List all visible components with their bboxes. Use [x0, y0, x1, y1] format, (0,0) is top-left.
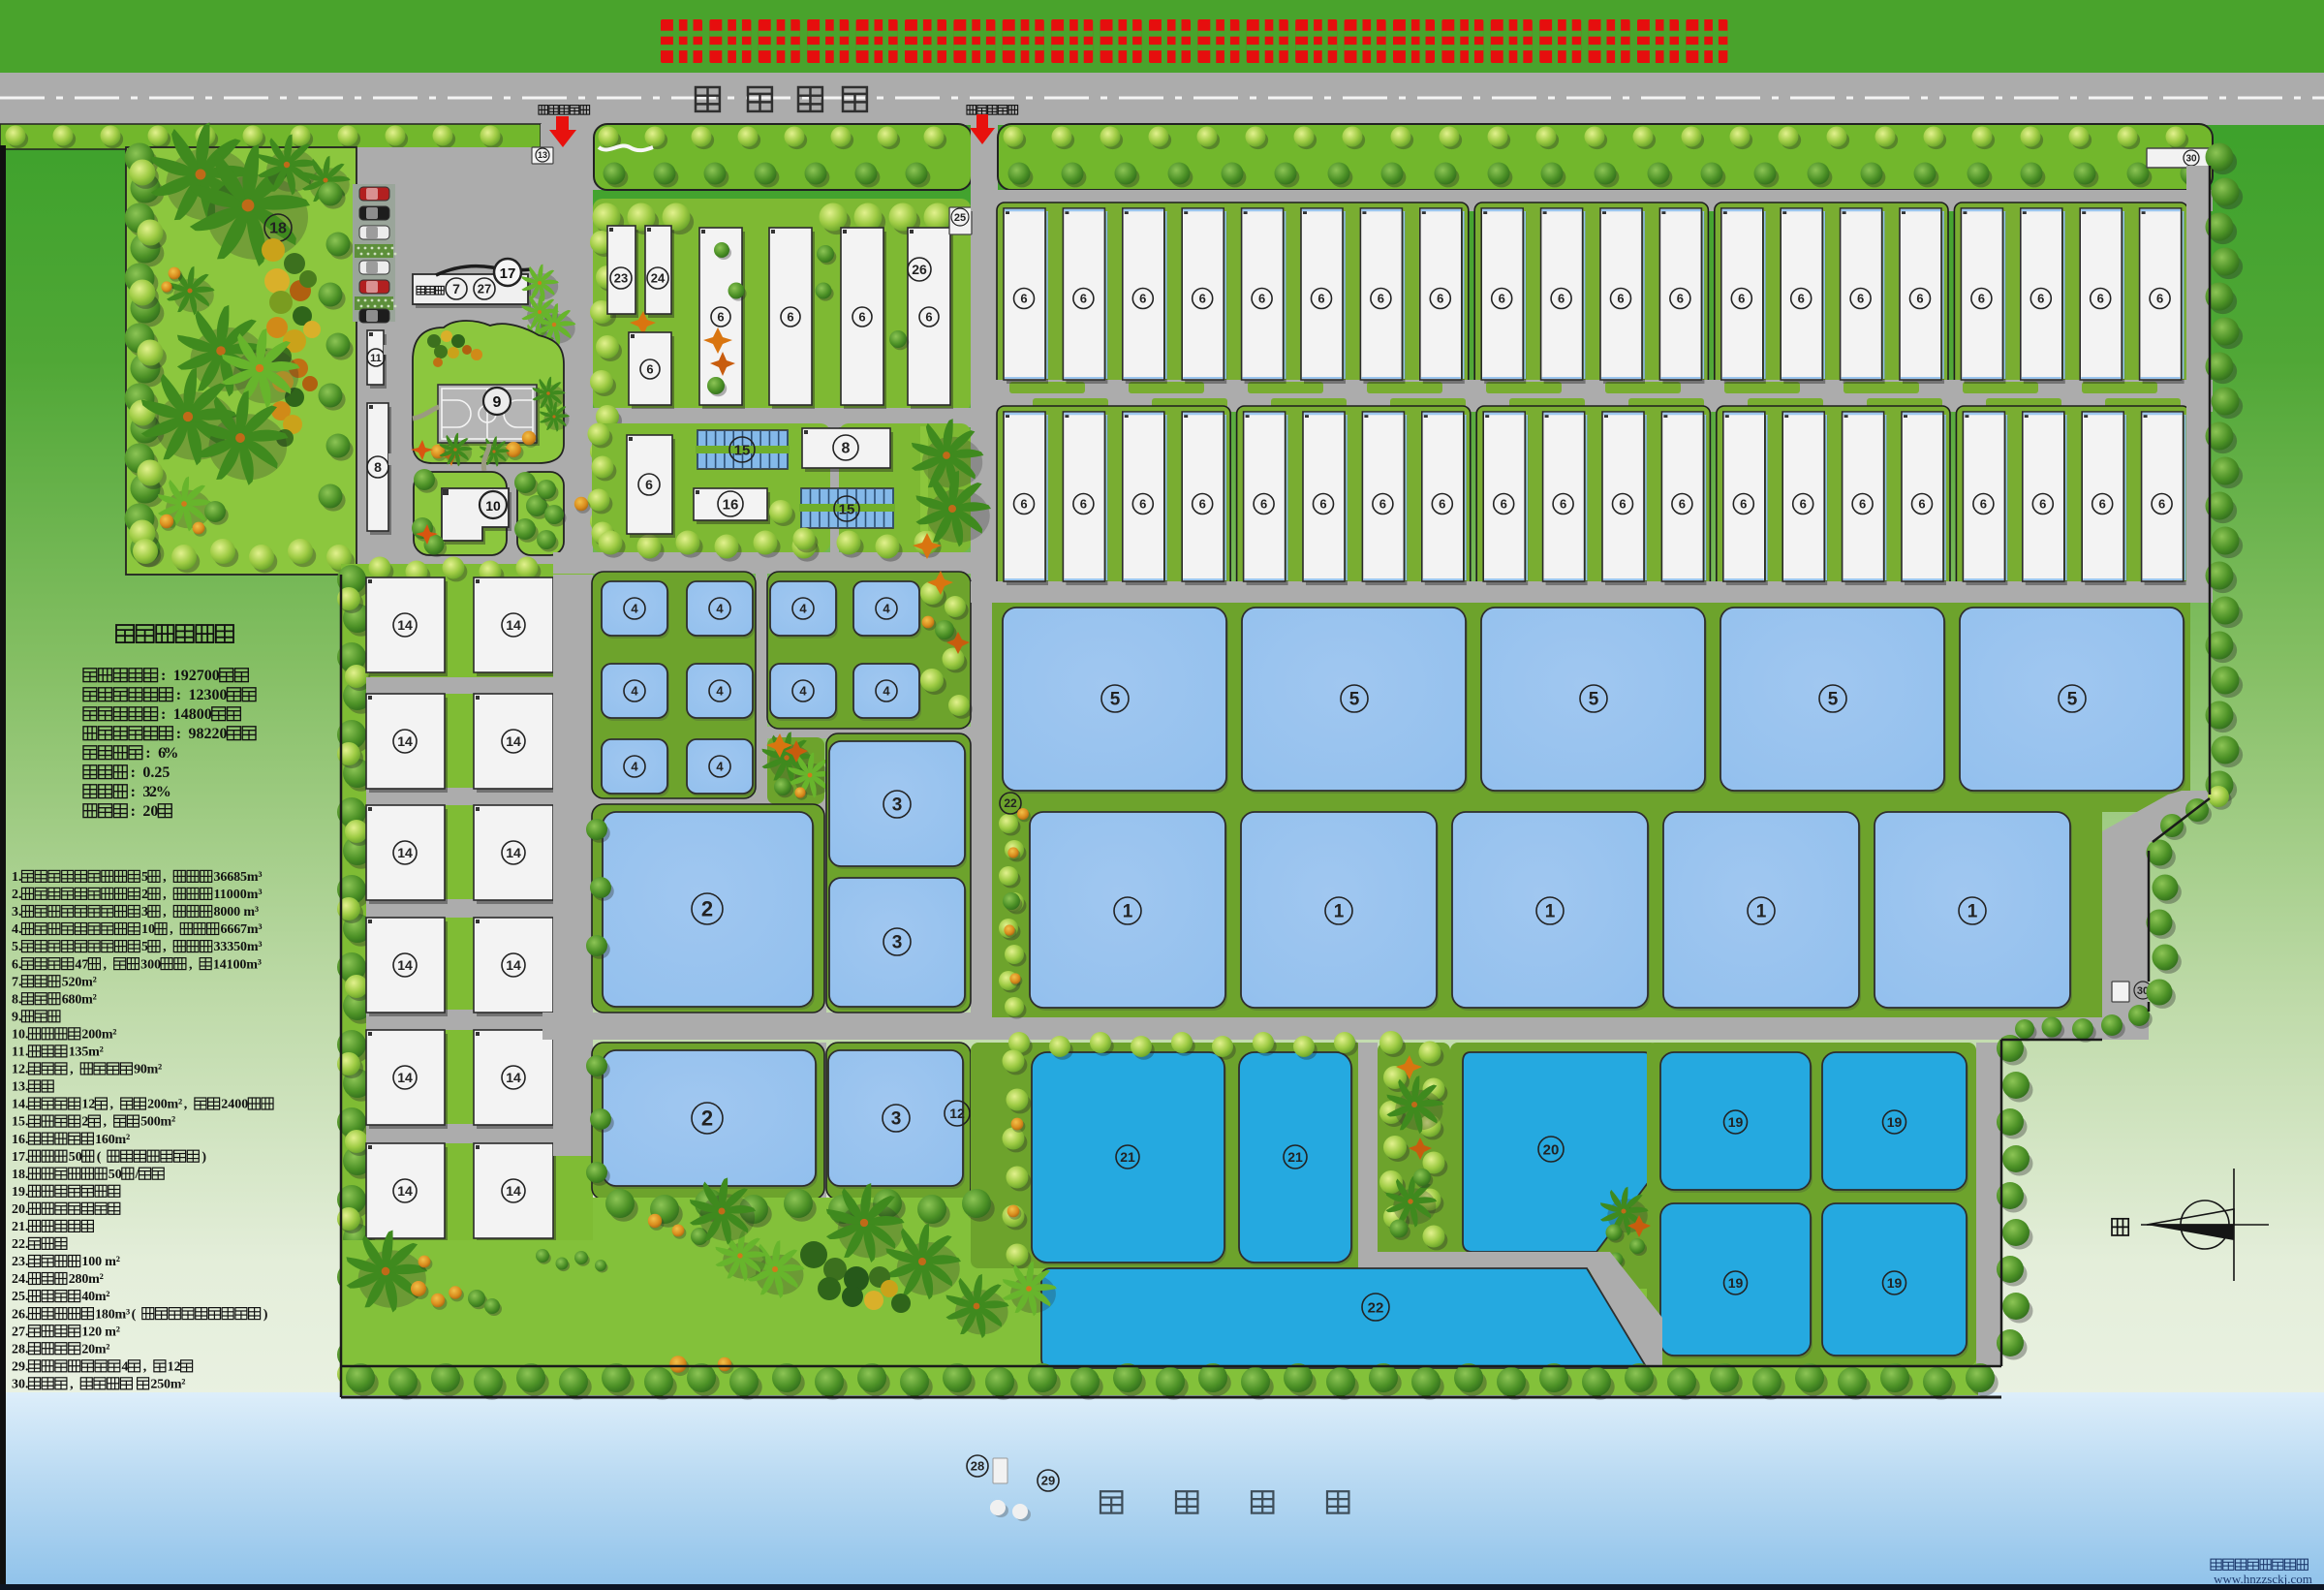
svg-text:180m³: 180m³ — [95, 1307, 130, 1322]
svg-text:3: 3 — [891, 1109, 902, 1130]
svg-text:5: 5 — [141, 940, 148, 954]
svg-text:6: 6 — [1080, 292, 1087, 306]
svg-text:,: , — [104, 957, 108, 972]
svg-text:6: 6 — [1260, 497, 1267, 512]
svg-text:5.: 5. — [12, 940, 22, 954]
svg-text:1: 1 — [1756, 902, 1767, 922]
svg-text:20: 20 — [1543, 1141, 1560, 1158]
svg-text::: : — [131, 803, 136, 820]
svg-text:6: 6 — [1980, 497, 1987, 512]
svg-text:6: 6 — [1437, 292, 1443, 306]
svg-text:135m²: 135m² — [69, 1045, 104, 1060]
svg-text:6: 6 — [717, 310, 724, 325]
svg-text:28.: 28. — [12, 1342, 29, 1356]
svg-text:14: 14 — [506, 733, 521, 749]
svg-text:3: 3 — [141, 905, 148, 920]
svg-text:3: 3 — [892, 933, 903, 953]
svg-text:36685m³: 36685m³ — [214, 870, 263, 885]
svg-text:1.: 1. — [12, 870, 22, 885]
svg-text:6: 6 — [1378, 292, 1384, 306]
svg-text:6: 6 — [1738, 292, 1745, 306]
svg-text:6: 6 — [1499, 292, 1505, 306]
svg-text:90m²: 90m² — [134, 1063, 162, 1077]
svg-text:14800: 14800 — [173, 706, 212, 723]
svg-text:4.: 4. — [12, 922, 22, 937]
svg-text:6: 6 — [858, 310, 865, 325]
svg-text:27.: 27. — [12, 1325, 29, 1339]
svg-text:,: , — [110, 1098, 114, 1112]
svg-text:22: 22 — [1004, 796, 1017, 810]
svg-text:26.: 26. — [12, 1307, 29, 1322]
svg-text:120 m²: 120 m² — [81, 1325, 120, 1339]
svg-text:6: 6 — [1558, 292, 1565, 306]
svg-text:2: 2 — [701, 1107, 713, 1131]
svg-text:14: 14 — [397, 617, 413, 633]
svg-text:,: , — [184, 1098, 188, 1112]
svg-text:4: 4 — [631, 760, 638, 774]
svg-text:(: ( — [132, 1307, 137, 1322]
svg-text::: : — [131, 784, 136, 800]
svg-text::: : — [176, 726, 181, 742]
svg-text:): ) — [201, 1150, 206, 1165]
svg-text:,: , — [163, 870, 167, 885]
svg-text:10.: 10. — [12, 1027, 29, 1042]
svg-text:12300: 12300 — [189, 687, 228, 703]
svg-text:6.: 6. — [12, 957, 22, 972]
svg-text:21.: 21. — [12, 1220, 29, 1234]
svg-text:6: 6 — [2156, 292, 2163, 306]
svg-text:4: 4 — [122, 1359, 129, 1374]
svg-text:6: 6 — [1139, 292, 1146, 306]
svg-text:16: 16 — [723, 496, 739, 513]
svg-text:19: 19 — [1887, 1275, 1903, 1291]
svg-text:6: 6 — [2099, 497, 2106, 512]
svg-text:6: 6 — [1080, 497, 1087, 512]
svg-text:6: 6 — [1501, 497, 1507, 512]
svg-text:6%: 6% — [158, 745, 178, 762]
svg-text:12: 12 — [949, 1106, 965, 1121]
svg-text:6: 6 — [1677, 292, 1684, 306]
svg-text:4: 4 — [799, 602, 807, 616]
svg-text:5: 5 — [1349, 690, 1360, 710]
svg-text:4: 4 — [883, 684, 890, 699]
svg-text:,: , — [143, 1359, 147, 1374]
svg-text:6: 6 — [1859, 497, 1866, 512]
svg-text:14: 14 — [397, 1183, 413, 1199]
svg-text:192700: 192700 — [173, 668, 220, 684]
svg-text:6: 6 — [1978, 292, 1985, 306]
svg-text:1: 1 — [1334, 902, 1345, 922]
svg-text:6: 6 — [2158, 497, 2165, 512]
svg-text:14: 14 — [506, 1070, 521, 1085]
svg-text:6: 6 — [1798, 292, 1805, 306]
svg-text:2: 2 — [141, 888, 148, 902]
svg-text:,: , — [163, 905, 167, 920]
svg-text:6: 6 — [2039, 497, 2046, 512]
svg-text::: : — [161, 706, 166, 723]
svg-text:33350m³: 33350m³ — [214, 940, 263, 954]
svg-text:19: 19 — [1728, 1114, 1744, 1130]
svg-text:,: , — [70, 1377, 74, 1391]
svg-text:6: 6 — [1258, 292, 1265, 306]
svg-text:9.: 9. — [12, 1010, 22, 1024]
svg-text:4: 4 — [716, 760, 724, 774]
svg-text:200m²: 200m² — [147, 1098, 182, 1112]
svg-text:,: , — [189, 957, 193, 972]
svg-text:6: 6 — [1617, 292, 1624, 306]
svg-text:6: 6 — [787, 310, 793, 325]
svg-text:6: 6 — [1199, 292, 1206, 306]
svg-text:,: , — [163, 888, 167, 902]
svg-text:20m²: 20m² — [81, 1342, 109, 1356]
svg-text:13.: 13. — [12, 1080, 29, 1095]
svg-text:21: 21 — [1120, 1149, 1135, 1165]
svg-text:98220: 98220 — [189, 726, 228, 742]
svg-text:7.: 7. — [12, 975, 22, 989]
svg-text:8: 8 — [374, 459, 382, 475]
svg-text:7: 7 — [452, 281, 460, 296]
svg-text:5: 5 — [1589, 690, 1599, 710]
svg-text:3: 3 — [892, 795, 903, 816]
svg-text:6: 6 — [1439, 497, 1445, 512]
svg-text:6: 6 — [645, 477, 653, 492]
svg-text:6: 6 — [1740, 497, 1747, 512]
svg-text:18: 18 — [269, 221, 287, 237]
svg-text:200m²: 200m² — [81, 1027, 116, 1042]
svg-text:9: 9 — [493, 394, 502, 411]
svg-text:14100m³: 14100m³ — [213, 957, 262, 972]
svg-text:13: 13 — [538, 150, 547, 160]
svg-text:5: 5 — [1828, 690, 1839, 710]
svg-text:2: 2 — [81, 1115, 88, 1130]
svg-text:14: 14 — [397, 957, 413, 973]
svg-text:0.25: 0.25 — [142, 764, 170, 781]
svg-text:6667m³: 6667m³ — [221, 922, 263, 937]
svg-text:11: 11 — [370, 353, 382, 364]
svg-text:1: 1 — [1545, 902, 1556, 922]
svg-text:14: 14 — [397, 845, 413, 860]
svg-text:28: 28 — [971, 1459, 984, 1474]
svg-text:12.: 12. — [12, 1063, 29, 1077]
svg-text:20.: 20. — [12, 1202, 29, 1217]
svg-text:17.: 17. — [12, 1150, 29, 1165]
svg-text:4: 4 — [631, 602, 638, 616]
svg-text:29.: 29. — [12, 1359, 29, 1374]
svg-text:50: 50 — [69, 1150, 82, 1165]
svg-text:680m²: 680m² — [62, 992, 97, 1007]
svg-text:4: 4 — [631, 684, 638, 699]
svg-text:www.hnzzsckj.com: www.hnzzsckj.com — [2214, 1572, 2312, 1586]
svg-text:14: 14 — [506, 1183, 521, 1199]
svg-text:8: 8 — [842, 441, 851, 457]
svg-text:,: , — [70, 1063, 74, 1077]
svg-text:22.: 22. — [12, 1237, 29, 1252]
svg-text:21: 21 — [1287, 1149, 1303, 1165]
svg-text:,: , — [170, 922, 173, 937]
svg-text:500m²: 500m² — [140, 1115, 175, 1130]
svg-text:4: 4 — [799, 684, 807, 699]
svg-text:4: 4 — [883, 602, 890, 616]
svg-text:14: 14 — [397, 1070, 413, 1085]
svg-text:24.: 24. — [12, 1272, 29, 1287]
svg-text:27: 27 — [478, 282, 491, 296]
svg-text:10: 10 — [141, 922, 155, 937]
svg-text:30: 30 — [2185, 154, 2197, 165]
svg-text::: : — [176, 687, 181, 703]
svg-text:6: 6 — [925, 310, 932, 325]
svg-text:): ) — [263, 1307, 268, 1322]
svg-text:6: 6 — [1918, 497, 1925, 512]
svg-text:14.: 14. — [12, 1098, 29, 1112]
svg-text:8000 m³: 8000 m³ — [214, 905, 260, 920]
svg-text:50: 50 — [108, 1168, 122, 1182]
svg-text:520m²: 520m² — [62, 975, 97, 989]
svg-text:26: 26 — [912, 262, 927, 277]
svg-text:18.: 18. — [12, 1168, 29, 1182]
svg-text:6: 6 — [646, 362, 653, 377]
svg-text:280m²: 280m² — [69, 1272, 104, 1287]
svg-text:6: 6 — [1800, 497, 1807, 512]
svg-text::: : — [161, 668, 166, 684]
svg-text:300: 300 — [140, 957, 161, 972]
svg-text:5: 5 — [1110, 690, 1121, 710]
svg-text:17: 17 — [500, 265, 516, 282]
svg-text:6: 6 — [1857, 292, 1864, 306]
svg-text:6: 6 — [1020, 292, 1027, 306]
svg-text:16.: 16. — [12, 1133, 29, 1147]
svg-text:5: 5 — [2067, 690, 2078, 710]
svg-text:11000m³: 11000m³ — [214, 888, 263, 902]
svg-text:25: 25 — [954, 212, 966, 224]
svg-text:47: 47 — [75, 957, 88, 972]
svg-text:,: , — [163, 940, 167, 954]
svg-text:15: 15 — [839, 501, 855, 517]
svg-text:40m²: 40m² — [81, 1290, 109, 1304]
svg-text::: : — [145, 745, 150, 762]
svg-text:24: 24 — [651, 271, 666, 286]
svg-text:6: 6 — [1679, 497, 1686, 512]
svg-text:12: 12 — [168, 1359, 181, 1374]
svg-text:2400: 2400 — [221, 1098, 248, 1112]
svg-text:6: 6 — [1319, 497, 1326, 512]
svg-text:14: 14 — [506, 845, 521, 860]
svg-text:(: ( — [97, 1150, 102, 1165]
svg-text:1: 1 — [1968, 902, 1978, 922]
svg-text:22: 22 — [1368, 1299, 1384, 1316]
svg-text:4: 4 — [716, 684, 724, 699]
svg-text:6: 6 — [1317, 292, 1324, 306]
svg-text:15.: 15. — [12, 1115, 29, 1130]
svg-text:5: 5 — [141, 870, 148, 885]
svg-text:6: 6 — [1916, 292, 1923, 306]
svg-text:14: 14 — [506, 617, 521, 633]
svg-text:6: 6 — [1020, 497, 1027, 512]
svg-text:32%: 32% — [142, 784, 170, 800]
svg-text:4: 4 — [716, 602, 724, 616]
svg-text:6: 6 — [1199, 497, 1206, 512]
svg-text:25.: 25. — [12, 1290, 29, 1304]
svg-text:30.: 30. — [12, 1377, 29, 1391]
svg-text:6: 6 — [2037, 292, 2044, 306]
svg-text:3.: 3. — [12, 905, 22, 920]
svg-text:23.: 23. — [12, 1255, 29, 1269]
svg-text:23: 23 — [614, 271, 628, 286]
svg-text:2.: 2. — [12, 888, 22, 902]
svg-text:19.: 19. — [12, 1185, 29, 1200]
svg-text:8.: 8. — [12, 992, 22, 1007]
svg-text:19: 19 — [1887, 1114, 1903, 1130]
svg-text:12: 12 — [81, 1098, 95, 1112]
svg-text:10: 10 — [485, 498, 501, 514]
svg-text:6: 6 — [1560, 497, 1566, 512]
svg-text:20: 20 — [142, 803, 158, 820]
svg-text:11.: 11. — [12, 1045, 29, 1060]
svg-text:14: 14 — [506, 957, 521, 973]
svg-text:14: 14 — [397, 733, 413, 749]
svg-text:6: 6 — [1619, 497, 1626, 512]
svg-text:15: 15 — [734, 442, 751, 458]
svg-text::: : — [131, 764, 136, 781]
svg-text:6: 6 — [1139, 497, 1146, 512]
svg-text:,: , — [104, 1115, 108, 1130]
svg-text:29: 29 — [1041, 1474, 1055, 1488]
svg-text:250m²: 250m² — [150, 1377, 185, 1391]
svg-text:2: 2 — [701, 897, 713, 921]
svg-text:6: 6 — [1379, 497, 1386, 512]
svg-text:6: 6 — [2097, 292, 2104, 306]
svg-text:19: 19 — [1728, 1275, 1744, 1291]
svg-text:1: 1 — [1123, 902, 1133, 922]
svg-text:100 m²: 100 m² — [81, 1255, 120, 1269]
svg-text:160m²: 160m² — [95, 1133, 130, 1147]
